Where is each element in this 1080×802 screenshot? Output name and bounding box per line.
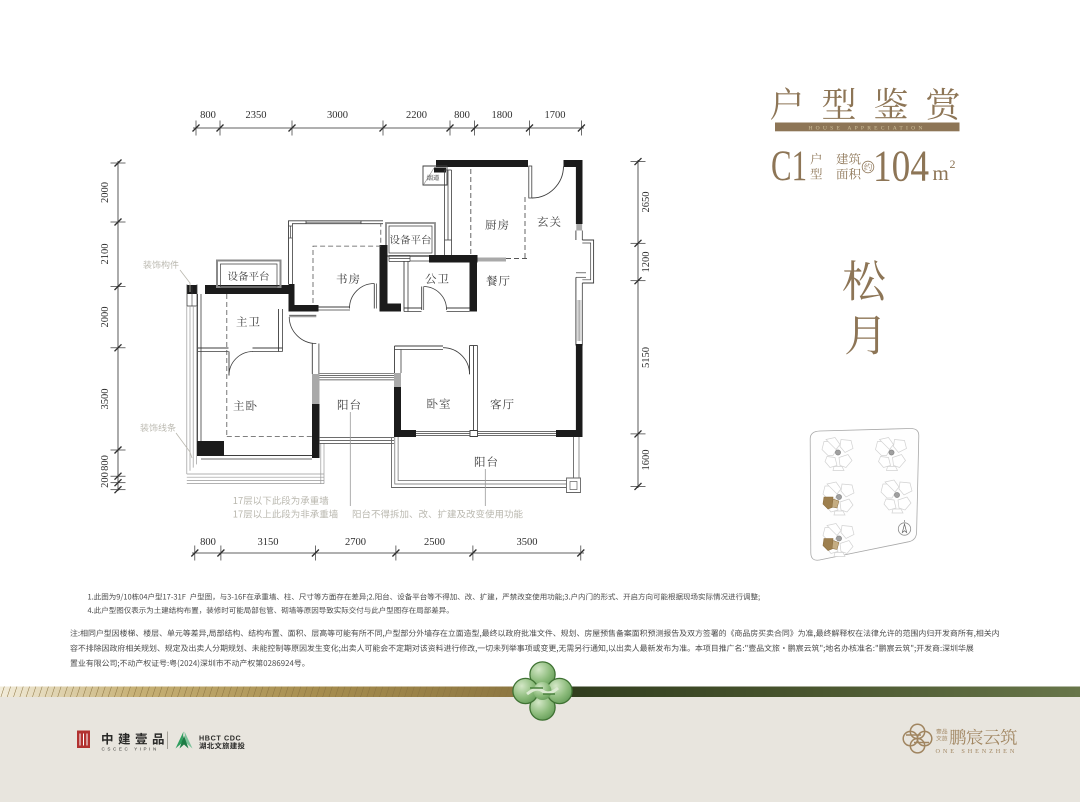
svg-text:2000: 2000 [100, 307, 111, 328]
svg-text:2100: 2100 [100, 244, 111, 265]
svg-text:3500: 3500 [100, 389, 111, 410]
svg-text:HOUSE APPRECIATION: HOUSE APPRECIATION [808, 125, 925, 131]
svg-text:2000: 2000 [100, 182, 111, 203]
svg-text:HBCT CDC: HBCT CDC [199, 734, 241, 743]
svg-text:200: 200 [100, 472, 111, 488]
svg-text:800: 800 [200, 110, 216, 121]
svg-text:m: m [933, 161, 949, 185]
svg-text:104: 104 [873, 142, 929, 191]
svg-text:800: 800 [454, 110, 470, 121]
svg-text:2500: 2500 [424, 537, 445, 548]
svg-text:3000: 3000 [327, 110, 348, 121]
svg-text:C1: C1 [771, 143, 807, 190]
svg-text:800: 800 [100, 455, 111, 471]
svg-text:2650: 2650 [641, 192, 652, 213]
svg-text:5150: 5150 [641, 347, 652, 368]
svg-text:3150: 3150 [258, 537, 279, 548]
svg-text:2: 2 [950, 157, 956, 171]
svg-text:2700: 2700 [345, 537, 366, 548]
svg-text:2350: 2350 [246, 110, 267, 121]
svg-text:1800: 1800 [492, 110, 513, 121]
svg-text:800: 800 [200, 537, 216, 548]
svg-text:1200: 1200 [641, 252, 652, 273]
svg-text:1700: 1700 [545, 110, 566, 121]
svg-text:CSCEC YIPIN: CSCEC YIPIN [102, 747, 159, 752]
svg-text:2200: 2200 [406, 110, 427, 121]
svg-text:1600: 1600 [641, 450, 652, 471]
svg-text:ONE SHENZHEN: ONE SHENZHEN [936, 748, 1018, 755]
svg-text:3500: 3500 [517, 537, 538, 548]
